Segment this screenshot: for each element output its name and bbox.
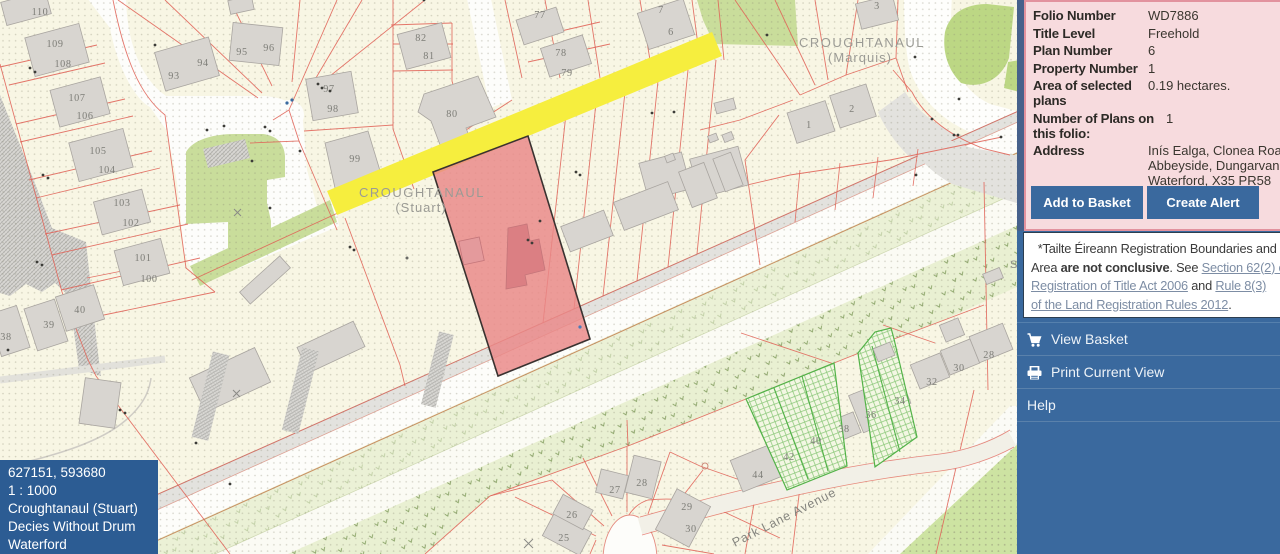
svg-text:77: 77 bbox=[534, 10, 545, 21]
svg-text:(Marquis): (Marquis) bbox=[828, 50, 892, 65]
svg-text:110: 110 bbox=[32, 7, 49, 18]
svg-text:80: 80 bbox=[446, 109, 457, 120]
svg-text:CROUGHTANAUL: CROUGHTANAUL bbox=[799, 35, 925, 50]
svg-text:94: 94 bbox=[197, 58, 208, 69]
svg-text:105: 105 bbox=[89, 146, 106, 157]
svg-text:36: 36 bbox=[865, 410, 876, 421]
svg-text:95: 95 bbox=[236, 47, 247, 58]
svg-text:(Stuart): (Stuart) bbox=[395, 200, 446, 215]
svg-text:44: 44 bbox=[752, 470, 763, 481]
svg-text:29: 29 bbox=[681, 502, 692, 513]
svg-text:40: 40 bbox=[74, 305, 85, 316]
svg-text:1: 1 bbox=[806, 120, 812, 131]
svg-text:6: 6 bbox=[668, 27, 674, 38]
svg-text:25: 25 bbox=[558, 533, 569, 544]
svg-text:38: 38 bbox=[838, 424, 849, 435]
svg-text:98: 98 bbox=[327, 104, 338, 115]
svg-text:96: 96 bbox=[263, 43, 274, 54]
svg-text:40: 40 bbox=[810, 436, 821, 447]
svg-text:78: 78 bbox=[555, 48, 566, 59]
svg-text:109: 109 bbox=[46, 39, 63, 50]
svg-text:100: 100 bbox=[140, 274, 157, 285]
svg-text:7: 7 bbox=[658, 5, 664, 16]
svg-text:108: 108 bbox=[54, 59, 71, 70]
svg-text:CROUGHTANAUL: CROUGHTANAUL bbox=[359, 185, 485, 200]
svg-text:38: 38 bbox=[0, 332, 11, 343]
svg-text:39: 39 bbox=[43, 320, 54, 331]
svg-text:82: 82 bbox=[415, 33, 426, 44]
svg-text:102: 102 bbox=[122, 218, 139, 229]
svg-text:2: 2 bbox=[849, 104, 855, 115]
svg-text:93: 93 bbox=[168, 71, 179, 82]
svg-text:30: 30 bbox=[685, 524, 696, 535]
svg-text:32: 32 bbox=[926, 377, 937, 388]
svg-text:28: 28 bbox=[983, 350, 994, 361]
svg-text:26: 26 bbox=[566, 510, 577, 521]
svg-text:107: 107 bbox=[68, 93, 85, 104]
svg-text:106: 106 bbox=[76, 111, 93, 122]
svg-text:99: 99 bbox=[349, 154, 360, 165]
svg-text:97: 97 bbox=[323, 84, 334, 95]
svg-text:103: 103 bbox=[113, 198, 130, 209]
svg-text:3: 3 bbox=[874, 1, 880, 12]
svg-text:104: 104 bbox=[98, 165, 115, 176]
svg-text:28: 28 bbox=[636, 478, 647, 489]
svg-text:101: 101 bbox=[134, 253, 151, 264]
svg-text:81: 81 bbox=[423, 51, 434, 62]
svg-text:27: 27 bbox=[609, 485, 620, 496]
svg-text:30: 30 bbox=[953, 363, 964, 374]
svg-text:79: 79 bbox=[561, 68, 572, 79]
svg-text:34: 34 bbox=[894, 396, 905, 407]
svg-text:42: 42 bbox=[783, 452, 794, 463]
